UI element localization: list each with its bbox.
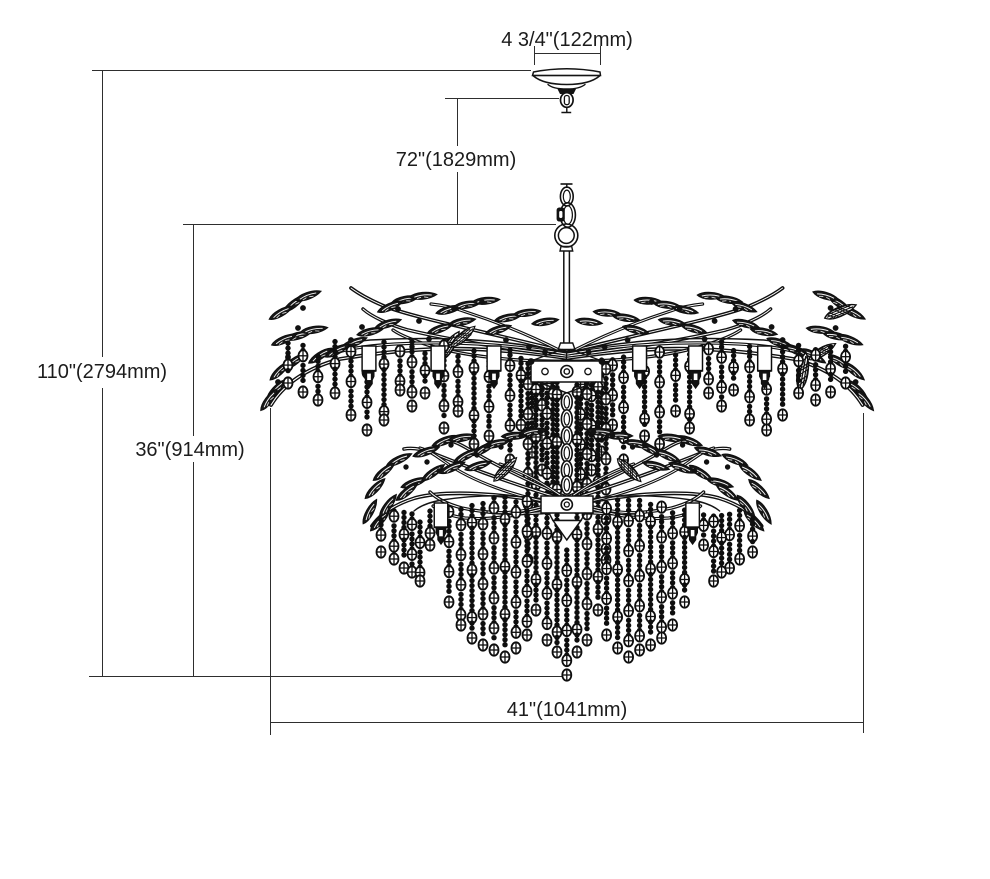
- svg-text:41"(1041mm): 41"(1041mm): [507, 699, 627, 721]
- svg-text:110"(2794mm): 110"(2794mm): [37, 361, 167, 383]
- svg-text:36"(914mm): 36"(914mm): [135, 439, 244, 461]
- svg-text:4 3/4"(122mm): 4 3/4"(122mm): [501, 29, 633, 51]
- svg-text:72"(1829mm): 72"(1829mm): [396, 149, 516, 171]
